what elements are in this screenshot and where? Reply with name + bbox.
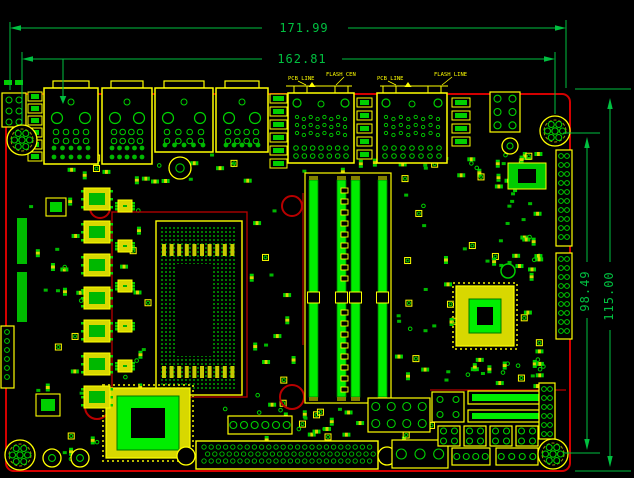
callout-label: FLASH LINE <box>434 72 467 78</box>
capacitor-round <box>169 157 191 179</box>
callout-layer: PCB LINE FLASH CEN PCB LINE FLASH LINE <box>286 72 467 87</box>
dim-label-board-width: 171.99 <box>279 21 328 35</box>
usb-stack-connector <box>288 86 354 163</box>
green-chip <box>508 163 546 189</box>
edge-pad-strip <box>539 383 555 439</box>
capacitor-round <box>502 138 518 154</box>
soic-chip <box>115 240 135 252</box>
header-connector <box>228 416 292 434</box>
component-cluster <box>466 358 544 388</box>
pcb-cad-canvas: 171.99 162.81 115.00 98.49 PCB LINE FLAS… <box>0 0 634 478</box>
io-jack-connector <box>44 81 98 164</box>
io-jack-connector <box>155 81 213 152</box>
edge-pad-strip <box>556 253 572 339</box>
soic-chip <box>115 280 135 292</box>
pin-header-connector <box>270 94 287 168</box>
component-cluster <box>303 408 342 440</box>
dim-label-hole-span-height: 98.49 <box>578 270 592 311</box>
header-connector <box>438 426 460 446</box>
soic-chip <box>115 320 135 332</box>
soic-chip <box>81 386 113 408</box>
soic-chip <box>115 200 135 212</box>
soic-chip <box>81 320 113 342</box>
edge-pad-strip <box>556 150 572 246</box>
mounting-hole <box>538 439 568 469</box>
header-connector <box>496 448 538 465</box>
mounting-hole <box>7 125 37 155</box>
capacitor-round <box>71 449 89 467</box>
via-ring <box>501 264 515 278</box>
pin-header-connector <box>357 98 372 159</box>
board-to-board-connector <box>177 441 396 469</box>
header-connector <box>452 448 490 465</box>
callout-label: PCB LINE <box>377 76 404 82</box>
green-bar-connector <box>468 391 546 422</box>
qfp-chip <box>453 283 517 349</box>
callout-label: PCB LINE <box>288 76 315 82</box>
keepout-circle <box>282 196 302 216</box>
usb-stack-connector <box>377 86 447 163</box>
header-connector <box>432 392 464 422</box>
soic-chip <box>81 353 113 375</box>
mounting-hole <box>540 116 570 146</box>
qfn-chip <box>36 394 60 416</box>
soic-chip <box>115 360 135 372</box>
cpu-bga <box>156 221 242 395</box>
component-cluster <box>250 209 296 425</box>
keepout-circle <box>280 385 304 409</box>
callout-label: FLASH CEN <box>326 72 356 78</box>
pcb-drawing: 171.99 162.81 115.00 98.49 PCB LINE FLAS… <box>0 0 634 478</box>
qfn-chip <box>46 198 66 216</box>
soic-chip <box>81 254 113 276</box>
mounting-hole <box>5 440 35 470</box>
pin-header-connector <box>452 98 470 146</box>
io-jack-connector <box>216 81 268 152</box>
dim-label-board-height: 115.00 <box>602 271 616 320</box>
component-cluster <box>522 218 544 281</box>
capacitor-round <box>43 449 61 467</box>
io-jack-connector <box>102 81 152 164</box>
soic-chip <box>81 221 113 243</box>
header-connector <box>464 426 486 446</box>
sodimm-slots <box>305 173 391 403</box>
header-connector <box>490 92 520 132</box>
dim-label-hole-span-width: 162.81 <box>277 52 326 66</box>
header-connector <box>490 426 512 446</box>
header-connector <box>368 398 430 432</box>
soic-chip <box>81 287 113 309</box>
soic-chip <box>81 188 113 210</box>
header-connector <box>516 426 538 446</box>
component-cluster <box>29 198 84 411</box>
